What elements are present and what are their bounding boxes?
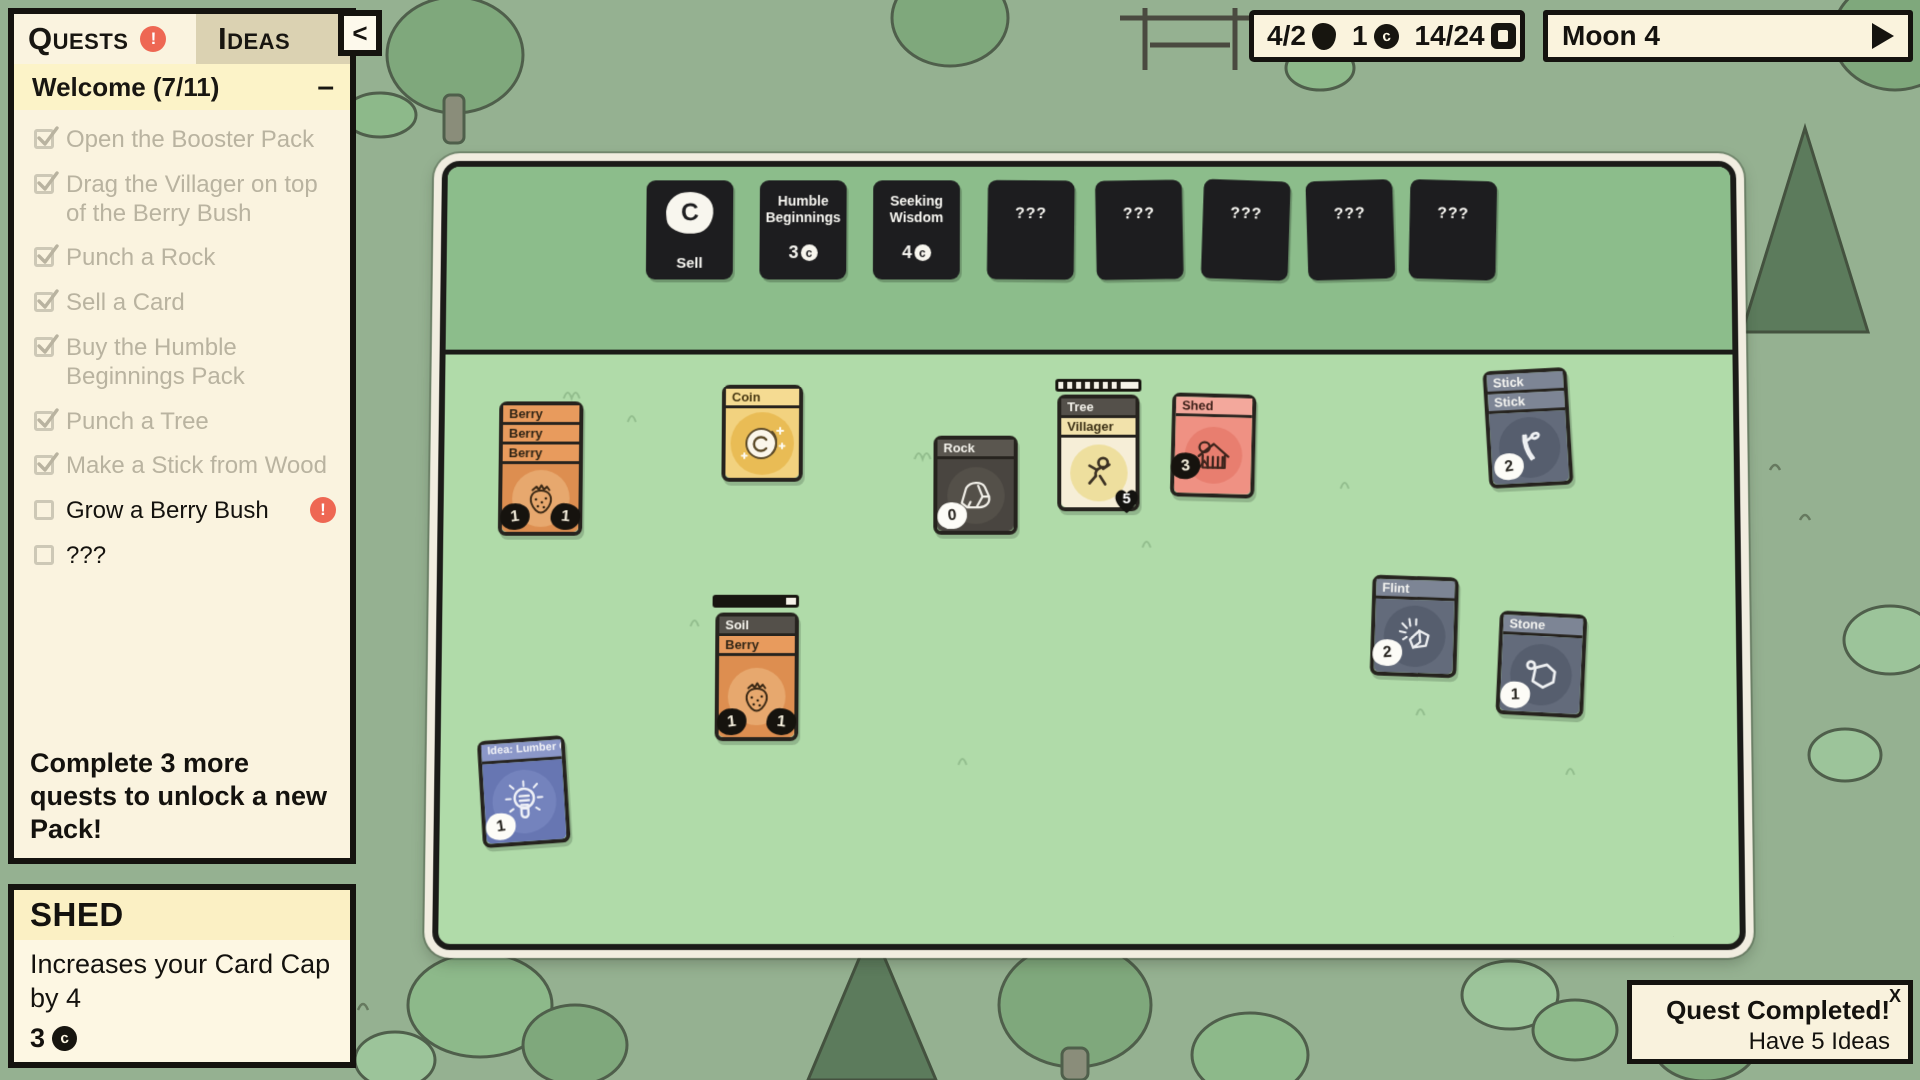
card-title: Villager — [1061, 418, 1135, 438]
quest-label: Punch a Rock — [66, 244, 215, 273]
board-border: C Sell Humble Beginnings 3 c Seeking Wis… — [424, 153, 1754, 958]
quest-item[interactable]: Make a Stick from Wood — [34, 452, 336, 481]
coin-icon: c — [914, 244, 931, 261]
coin-value: 1 — [1352, 20, 1368, 52]
food-icon — [1312, 23, 1336, 50]
quest-label: Punch a Tree — [66, 408, 209, 437]
sell-label: Sell — [646, 255, 733, 272]
quest-item[interactable]: Punch a Tree — [34, 408, 336, 437]
value-badge: 1 — [1500, 681, 1531, 708]
card-berry-stack[interactable]: Berry Berry Berry 1 1 — [498, 401, 584, 535]
quest-label: Drag the Villager on top of the Berry Bu… — [66, 171, 336, 229]
coin-blob-icon: C — [664, 190, 715, 236]
value-badge: 1 — [549, 502, 581, 531]
value-badge: 1 — [765, 707, 798, 737]
quest-label: ??? — [66, 542, 106, 571]
info-description: Increases your Card Cap by 4 — [14, 940, 350, 1016]
quests-alert-icon: ! — [140, 26, 166, 52]
quest-label: Grow a Berry Bush — [66, 497, 269, 526]
growth-progress-bar — [713, 595, 799, 608]
coin-counter: 1 c — [1352, 20, 1399, 52]
pack-unknown-3[interactable]: ??? — [1201, 179, 1291, 281]
value-badge: 1 — [499, 502, 531, 531]
card-title: Rock — [937, 440, 1013, 460]
quest-label: Sell a Card — [66, 289, 185, 318]
food-value: 4/2 — [1267, 20, 1306, 52]
card-cap-value: 14/24 — [1415, 20, 1485, 52]
unknown-pack-label: ??? — [1306, 204, 1393, 224]
quest-panel: Quests ! Ideas Welcome (7/11) – Open the… — [8, 8, 356, 864]
quest-footer-message: Complete 3 more quests to unlock a new P… — [30, 747, 336, 846]
card-flint[interactable]: Flint 2 — [1370, 575, 1459, 679]
food-counter: 4/2 — [1267, 20, 1336, 52]
card-title: Shed — [1176, 397, 1253, 419]
pack-title: Humble Beginnings — [760, 193, 847, 225]
card-tree-villager-stack[interactable]: Tree Villager — [1057, 395, 1139, 512]
tab-quests-label: Quests — [28, 21, 128, 57]
pack-unknown-4[interactable]: ??? — [1305, 179, 1395, 280]
card-title: Flint — [1376, 579, 1455, 601]
card-title: Tree — [1061, 398, 1135, 418]
checkbox-checked-icon — [34, 337, 54, 357]
card-title: Berry — [719, 636, 795, 656]
sell-value: 3 — [30, 1023, 45, 1054]
card-cap-counter: 14/24 — [1415, 20, 1516, 52]
pack-unknown-2[interactable]: ??? — [1095, 180, 1184, 281]
value-badge: 1 — [715, 707, 747, 737]
checkbox-checked-icon — [34, 129, 54, 149]
quest-item[interactable]: Sell a Card — [34, 289, 336, 318]
quest-alert-icon: ! — [310, 497, 336, 523]
quest-item[interactable]: Grow a Berry Bush ! — [34, 497, 336, 526]
pack-humble-beginnings[interactable]: Humble Beginnings 3 c — [759, 180, 846, 279]
coin-icon: c — [50, 1024, 78, 1052]
card-info-panel: SHED Increases your Card Cap by 4 3 c — [8, 884, 356, 1068]
quest-group-header[interactable]: Welcome (7/11) – — [14, 64, 350, 110]
quest-label: Make a Stick from Wood — [66, 452, 327, 481]
game-screen: C Sell Humble Beginnings 3 c Seeking Wis… — [0, 0, 1920, 1080]
card-title: Soil — [719, 617, 795, 637]
pack-cost-value: 3 — [789, 243, 799, 263]
pack-seeking-wisdom[interactable]: Seeking Wisdom 4 c — [873, 180, 960, 279]
info-title: SHED — [14, 890, 350, 940]
tab-quests[interactable]: Quests ! — [14, 14, 196, 64]
toast-title: Quest Completed! — [1644, 995, 1890, 1026]
checkbox-checked-icon — [34, 247, 54, 267]
quest-group-title: Welcome (7/11) — [32, 72, 219, 103]
pack-unknown-1[interactable]: ??? — [987, 180, 1075, 280]
checkbox-checked-icon — [34, 292, 54, 312]
checkbox-empty-icon — [34, 545, 54, 565]
card-title: Berry — [503, 444, 579, 464]
coin-icon: c — [1372, 22, 1400, 50]
health-heart-badge: 5 — [1110, 485, 1144, 516]
tab-ideas-label: Ideas — [218, 21, 290, 57]
card-stick-stack[interactable]: Stick Stick 2 — [1482, 367, 1573, 489]
sell-slot-card[interactable]: C Sell — [646, 180, 734, 279]
card-soil-berry-stack[interactable]: Soil Berry 1 1 — [715, 613, 799, 742]
card-title: Berry — [503, 425, 579, 445]
card-stone[interactable]: Stone 1 — [1495, 610, 1587, 718]
resource-bar: 4/2 1 c 14/24 — [1249, 10, 1525, 62]
play-icon[interactable] — [1872, 23, 1894, 49]
unknown-pack-label: ??? — [1410, 204, 1497, 224]
board-surface[interactable]: C Sell Humble Beginnings 3 c Seeking Wis… — [432, 161, 1746, 950]
quest-item[interactable]: Buy the Humble Beginnings Pack — [34, 334, 336, 392]
tab-ideas[interactable]: Ideas — [196, 14, 350, 64]
quest-list: Open the Booster Pack Drag the Villager … — [14, 110, 350, 571]
moon-timeline-bar: Moon 4 — [1543, 10, 1913, 62]
card-title: Berry — [503, 405, 579, 425]
pack-unknown-5[interactable]: ??? — [1408, 179, 1497, 280]
moon-label: Moon 4 — [1562, 20, 1660, 52]
card-title: Coin — [726, 389, 799, 409]
grass-marks — [438, 167, 1739, 934]
coin-icon — [730, 412, 794, 475]
quest-item[interactable]: ??? — [34, 542, 336, 571]
toast-body: Have 5 Ideas — [1644, 1028, 1890, 1056]
quest-completed-toast: X Quest Completed! Have 5 Ideas — [1627, 980, 1913, 1064]
info-sell-value: 3 c — [30, 1023, 77, 1054]
coin-icon: c — [800, 244, 817, 261]
collapse-group-icon[interactable]: – — [317, 77, 334, 97]
collapse-panel-button[interactable]: < — [338, 10, 382, 56]
close-icon[interactable]: X — [1889, 987, 1901, 1005]
harvest-progress-bar — [1055, 379, 1141, 392]
card-cap-icon — [1491, 23, 1516, 49]
health-value: 5 — [1110, 485, 1144, 516]
card-idea-lumber-camp[interactable]: Idea: Lumber Camp 1 — [477, 735, 571, 848]
checkbox-empty-icon — [34, 500, 54, 520]
quest-item[interactable]: Punch a Rock — [34, 244, 336, 273]
pack-title: Seeking Wisdom — [873, 193, 960, 225]
play-board: C Sell Humble Beginnings 3 c Seeking Wis… — [424, 153, 1754, 958]
unknown-pack-label: ??? — [988, 205, 1075, 223]
pack-cost-value: 4 — [902, 243, 912, 263]
value-badge: 0 — [936, 501, 968, 530]
chevron-left-icon: < — [352, 18, 367, 49]
card-coin[interactable]: Coin — [721, 385, 803, 482]
checkbox-checked-icon — [34, 411, 54, 431]
card-shed[interactable]: Shed 3 — [1170, 393, 1257, 499]
quest-panel-tabs: Quests ! Ideas — [14, 14, 350, 64]
quest-label: Buy the Humble Beginnings Pack — [66, 334, 336, 392]
checkbox-checked-icon — [34, 174, 54, 194]
quest-item[interactable]: Open the Booster Pack — [34, 126, 336, 155]
quest-item[interactable]: Drag the Villager on top of the Berry Bu… — [34, 171, 336, 229]
quest-label: Open the Booster Pack — [66, 126, 314, 155]
coin-letter: C — [680, 198, 699, 227]
checkbox-checked-icon — [34, 455, 54, 475]
card-rock[interactable]: Rock 0 — [933, 436, 1017, 535]
unknown-pack-label: ??? — [1095, 205, 1182, 224]
unknown-pack-label: ??? — [1203, 204, 1290, 224]
